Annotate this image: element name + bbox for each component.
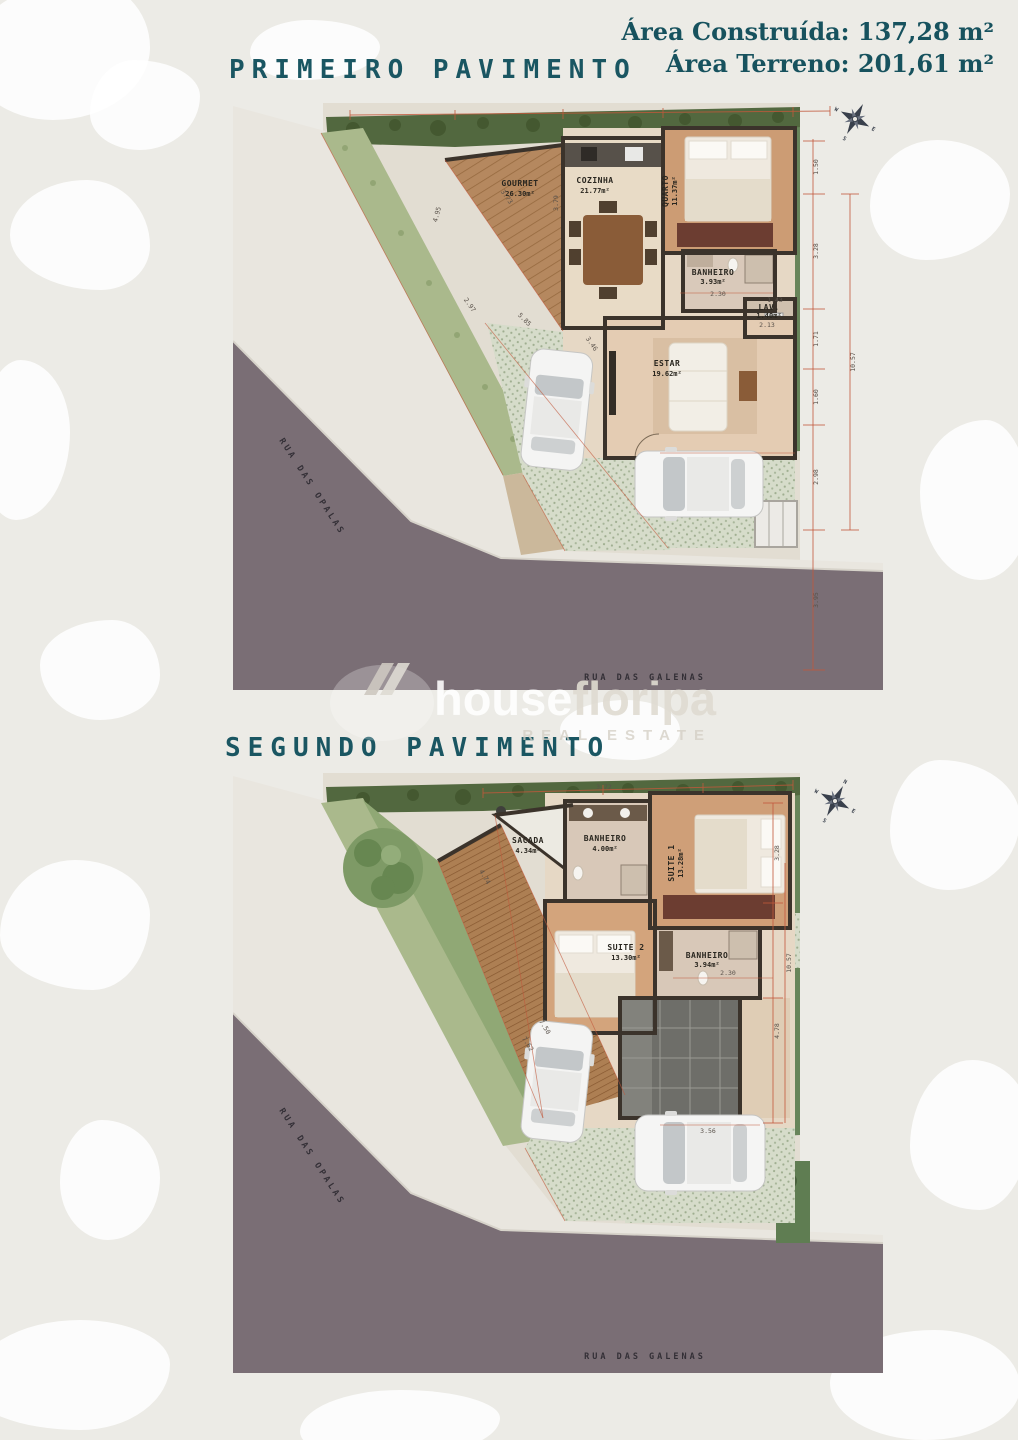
room-area-banheiro: 3.93m² xyxy=(700,278,725,286)
vanity xyxy=(569,805,647,821)
basin xyxy=(620,808,630,818)
bed xyxy=(685,137,771,221)
dresser xyxy=(677,223,773,247)
svg-text:S: S xyxy=(841,136,847,143)
dim-label: 2.30 xyxy=(720,969,736,977)
texture-blob xyxy=(0,1320,170,1430)
room-label-banheiro: BANHEIRO xyxy=(692,268,735,277)
dim-label: 3.72 xyxy=(596,783,612,791)
sofa xyxy=(669,343,727,431)
room-area-sacada: 4.34m² xyxy=(515,847,540,855)
svg-text:11.37m²: 11.37m² xyxy=(671,176,679,206)
bed xyxy=(695,815,785,893)
dim-label: 10.57 xyxy=(849,352,857,372)
basin xyxy=(583,808,593,818)
shower xyxy=(621,865,647,895)
room-label-gourmet: GOURMET xyxy=(501,179,538,188)
svg-text:W: W xyxy=(833,107,839,114)
dim-label: 3.95 xyxy=(812,592,820,608)
dim-label: 3.28 xyxy=(773,845,781,861)
car-street xyxy=(635,1111,765,1195)
room-area-estar: 19.62m² xyxy=(652,370,682,378)
svg-text:S: S xyxy=(821,818,827,825)
room-label-estar: ESTAR xyxy=(654,359,681,368)
shower xyxy=(745,255,773,283)
room-label-sacada: SACADA xyxy=(512,836,544,845)
tree xyxy=(343,828,423,908)
room-area-suite2: 13.30m² xyxy=(611,954,641,962)
tv-panel xyxy=(609,351,616,415)
header-areas: Área Construída: 137,28 m² Área Terreno:… xyxy=(622,16,994,80)
texture-blob xyxy=(0,360,70,520)
vanity xyxy=(687,255,713,267)
toilet xyxy=(573,866,583,880)
watermark-brand: housefloripa xyxy=(434,671,716,726)
svg-text:13.28m²: 13.28m² xyxy=(677,848,685,878)
svg-text:QUARTO: QUARTO xyxy=(661,175,670,207)
room-area-gourmet: 26.30m² xyxy=(505,190,535,198)
room-label-banheiro1: BANHEIRO xyxy=(584,834,627,843)
plan2-drawing: 3.72 4.74 7.50 7.62 3.56 2.30 4.78 10.57… xyxy=(233,773,883,1373)
texture-blob xyxy=(300,1390,500,1440)
dim-label: 4.78 xyxy=(773,1023,781,1039)
svg-text:SUITE 1: SUITE 1 xyxy=(667,844,676,881)
room-area-cozinha: 21.77m² xyxy=(580,187,610,195)
texture-blob xyxy=(870,140,1010,260)
svg-text:E: E xyxy=(850,808,856,815)
room-label-suite2: SUITE 2 xyxy=(607,943,644,952)
kitchen-counter xyxy=(565,143,661,167)
watermark-tagline: REAL ESTATE xyxy=(522,727,712,744)
dim-label: 2.30 xyxy=(710,290,726,298)
area-construida-text: Área Construída: 137,28 m² xyxy=(622,16,994,48)
texture-blob xyxy=(910,1060,1018,1210)
corridor-floor xyxy=(740,998,790,1118)
street-galenas: RUA DAS GALENAS xyxy=(584,1352,706,1362)
watermark: housefloripa REAL ESTATE xyxy=(330,648,800,748)
texture-blob xyxy=(10,180,150,290)
watermark-logo-icon xyxy=(330,655,434,741)
compass-rose-icon: N E S W xyxy=(823,103,883,153)
room-area-lav: 1.40m² xyxy=(756,312,781,320)
brand-house: house xyxy=(434,672,572,725)
svg-text:W: W xyxy=(813,789,819,796)
stove xyxy=(581,147,597,161)
shower xyxy=(729,931,757,959)
texture-blob xyxy=(0,860,150,990)
room-area-banheiro1: 4.00m² xyxy=(592,845,617,853)
dim-label: 1.71 xyxy=(812,331,820,347)
plan1-title: PRIMEIRO PAVIMENTO xyxy=(229,55,637,85)
dim-label: 2.98 xyxy=(812,469,820,485)
room-area-banheiro2: 3.94m² xyxy=(694,961,719,969)
dim-label: 1.50 xyxy=(812,159,820,175)
room-label-cozinha: COZINHA xyxy=(576,176,613,185)
svg-text:N: N xyxy=(842,779,848,786)
floorplan-sheet: Área Construída: 137,28 m² Área Terreno:… xyxy=(0,0,1018,1440)
compass-rose-icon: N E S W xyxy=(803,773,866,835)
texture-blob xyxy=(920,420,1018,580)
dresser xyxy=(663,895,775,919)
glass-void xyxy=(620,998,740,1118)
texture-blob xyxy=(60,1120,160,1240)
vanity xyxy=(659,931,673,971)
area-terreno-text: Área Terreno: 201,61 m² xyxy=(622,48,994,80)
dim-label: 3.28 xyxy=(812,243,820,259)
svg-text:N: N xyxy=(862,103,868,104)
brand-floripa: floripa xyxy=(572,672,716,725)
dim-label: 2.13 xyxy=(759,321,775,329)
room-label-lav: LAV. xyxy=(758,303,779,312)
room-label-banheiro2: BANHEIRO xyxy=(686,951,729,960)
coffee-table xyxy=(739,371,757,401)
sink xyxy=(625,147,643,161)
dim-label: 10.57 xyxy=(785,953,793,973)
car-street xyxy=(635,447,763,521)
texture-blob xyxy=(90,60,200,150)
texture-blob xyxy=(890,760,1018,890)
plan1-drawing: 1.50 3.28 1.71 1.60 2.98 3.95 10.57 4.95… xyxy=(233,103,883,690)
svg-text:E: E xyxy=(870,126,876,133)
dim-label: 1.60 xyxy=(812,389,820,405)
dim-label: 3.79 xyxy=(552,195,560,211)
texture-blob xyxy=(40,620,160,720)
dim-label: 3.56 xyxy=(700,1127,716,1135)
